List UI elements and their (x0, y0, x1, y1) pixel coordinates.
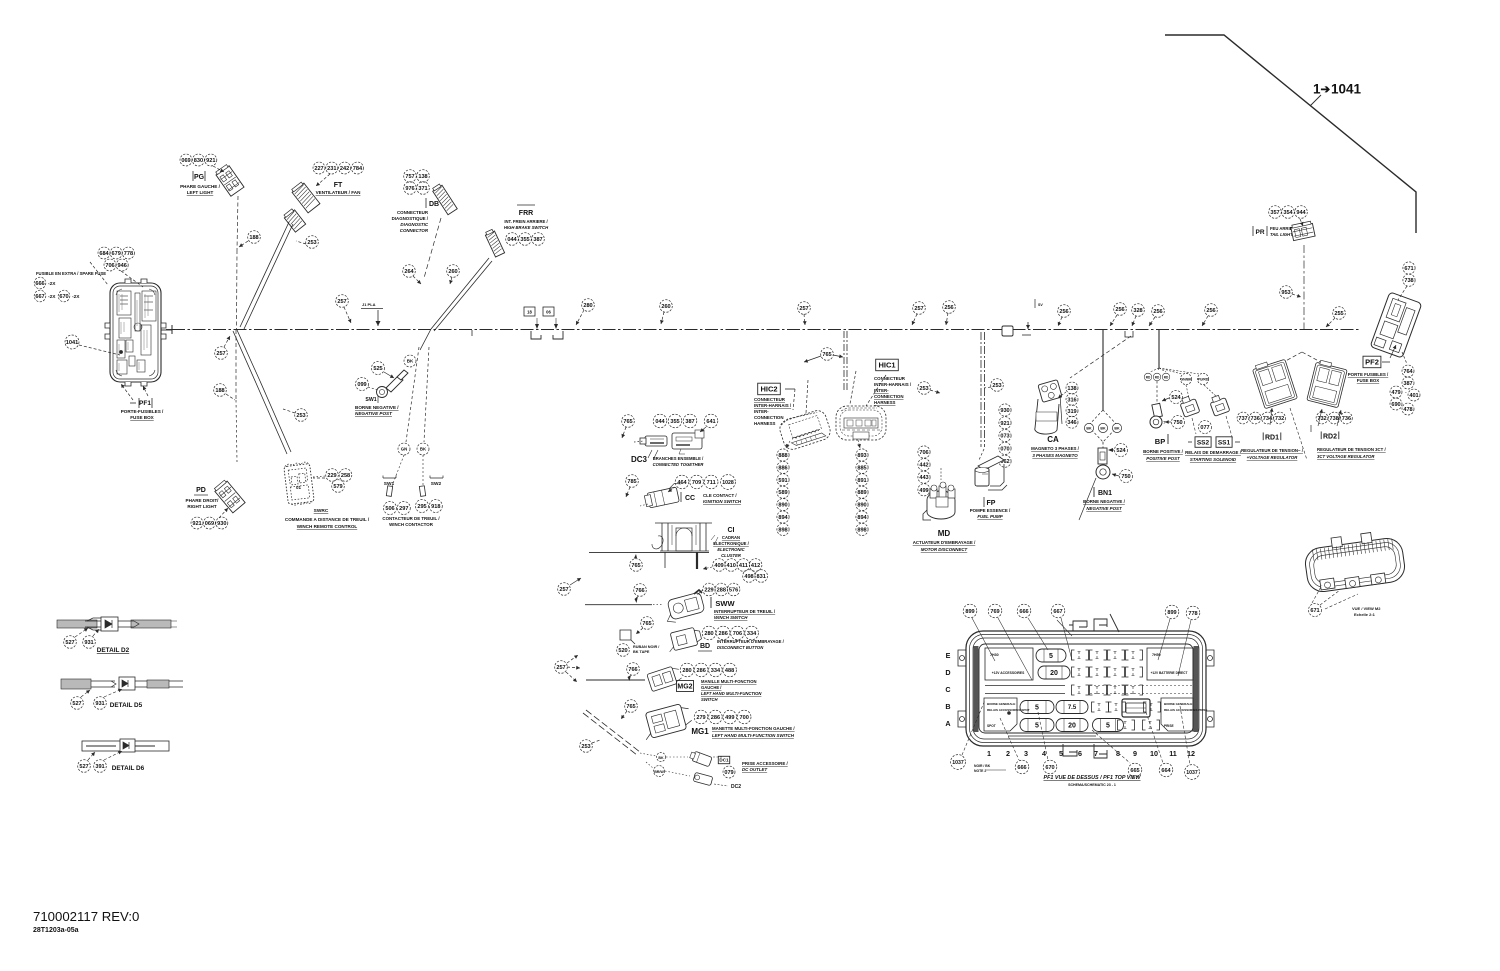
svg-text:765: 765 (631, 563, 640, 569)
svg-text:506: 506 (385, 506, 394, 512)
svg-text:SW2: SW2 (431, 481, 442, 487)
svg-text:3: 3 (1024, 749, 1028, 758)
svg-text:257: 257 (799, 306, 808, 312)
svg-text:SPOT: SPOT (987, 724, 996, 728)
svg-text:2: 2 (1006, 749, 1010, 758)
svg-text:464: 464 (677, 480, 687, 486)
svg-text:442: 442 (919, 463, 928, 469)
svg-text:LEFT HAND MULTI-FUNCTION SWITC: LEFT HAND MULTI-FUNCTION SWITCH (712, 733, 795, 738)
svg-text:750: 750 (1121, 474, 1130, 480)
svg-text:FRR: FRR (519, 210, 533, 217)
svg-text:SCHEMA/SCHEMATIC 23 - 1: SCHEMA/SCHEMATIC 23 - 1 (1068, 783, 1116, 787)
svg-text:18: 18 (527, 310, 532, 315)
svg-text:RD: RD (1155, 375, 1160, 379)
svg-text:499: 499 (725, 715, 734, 721)
svg-text:280: 280 (704, 631, 713, 637)
svg-text:286: 286 (711, 715, 720, 721)
svg-text:253: 253 (919, 386, 928, 392)
svg-text:RD2: RD2 (1323, 434, 1337, 441)
svg-text:01: 01 (296, 485, 302, 490)
svg-text:319: 319 (1067, 409, 1076, 415)
svg-text:073: 073 (1000, 434, 1009, 440)
svg-text:524: 524 (1116, 448, 1126, 454)
svg-text:5: 5 (1106, 723, 1110, 730)
svg-text:256: 256 (944, 305, 953, 311)
svg-text:20: 20 (1050, 670, 1058, 677)
svg-text:706: 706 (105, 263, 114, 269)
svg-text:256: 256 (1206, 308, 1215, 314)
svg-text:412: 412 (751, 563, 760, 569)
svg-text:BK TAPE: BK TAPE (633, 650, 650, 654)
svg-text:710002117 REV:0: 710002117 REV:0 (33, 909, 139, 924)
svg-text:FUSIBLE EN EXTRA / SPARE FUSE: FUSIBLE EN EXTRA / SPARE FUSE (36, 271, 106, 276)
svg-text:286: 286 (697, 668, 706, 674)
svg-text:SWITCH: SWITCH (701, 697, 718, 702)
svg-text:706: 706 (919, 450, 928, 456)
svg-text:NOTE 2: NOTE 2 (974, 769, 986, 773)
svg-text:3CT VOLTAGE REGULATOR: 3CT VOLTAGE REGULATOR (1317, 454, 1375, 459)
svg-text:+VOLTAGE REGULATOR: +VOLTAGE REGULATOR (1247, 455, 1299, 460)
svg-text:5: 5 (1035, 705, 1039, 712)
svg-text:946: 946 (118, 263, 127, 269)
svg-text:MD: MD (938, 529, 951, 538)
svg-text:231: 231 (327, 166, 336, 172)
svg-text:264: 264 (404, 269, 414, 275)
svg-text:766: 766 (635, 588, 644, 594)
svg-text:DISCONNECT BUTTON: DISCONNECT BUTTON (717, 645, 764, 650)
svg-text:RELAIS ACCESSOIRES PRISE: RELAIS ACCESSOIRES PRISE (1164, 708, 1207, 712)
svg-text:443: 443 (919, 475, 928, 481)
svg-text:B: B (945, 702, 950, 711)
svg-text:355: 355 (520, 237, 529, 243)
svg-text:DETAIL D5: DETAIL D5 (110, 702, 143, 709)
svg-text:➔: ➔ (1321, 84, 1331, 96)
svg-text:1028: 1028 (722, 480, 734, 486)
svg-text:BORNE NEGATIVE /: BORNE NEGATIVE / (355, 405, 399, 410)
svg-text:CLUSTER: CLUSTER (721, 553, 741, 558)
svg-text:CONNECTION: CONNECTION (754, 415, 784, 420)
svg-text:410: 410 (727, 563, 736, 569)
svg-text:711: 711 (707, 480, 716, 486)
svg-text:11: 11 (1169, 749, 1177, 758)
svg-text:BK: BK (1086, 427, 1092, 431)
svg-text:COMMANDE A DISTANCE DE TREUIL: COMMANDE A DISTANCE DE TREUIL / (285, 517, 370, 522)
svg-text:SWW: SWW (715, 599, 735, 608)
svg-text:576: 576 (729, 588, 738, 594)
svg-text:899: 899 (1167, 610, 1176, 616)
svg-text:921: 921 (206, 158, 215, 164)
svg-text:391: 391 (95, 764, 104, 770)
svg-text:FP: FP (987, 500, 996, 507)
svg-text:1041: 1041 (66, 340, 78, 346)
svg-text:PORTE FUSIBLES /: PORTE FUSIBLES / (1348, 372, 1389, 377)
svg-text:6: 6 (1078, 749, 1082, 758)
svg-text:784: 784 (353, 166, 363, 172)
svg-text:NEGATIVE POST: NEGATIVE POST (1086, 506, 1122, 511)
svg-text:5: 5 (1035, 723, 1039, 730)
svg-text:PORTE-FUSIBLES /: PORTE-FUSIBLES / (121, 409, 164, 414)
svg-text:280: 280 (583, 303, 592, 309)
svg-text:257: 257 (559, 587, 568, 593)
svg-text:346: 346 (1067, 420, 1076, 426)
svg-text:885: 885 (857, 465, 866, 471)
svg-text:666: 666 (35, 281, 44, 287)
svg-text:CA: CA (1047, 435, 1059, 444)
svg-text:C: C (945, 685, 950, 694)
svg-text:670: 670 (59, 294, 68, 300)
svg-text:SWRC: SWRC (314, 508, 329, 514)
svg-text:253: 253 (581, 744, 590, 750)
svg-text:DB: DB (429, 201, 439, 208)
svg-text:PR: PR (1255, 229, 1264, 236)
svg-text:BK: BK (420, 447, 427, 452)
svg-text:295: 295 (417, 504, 426, 510)
svg-text:898: 898 (857, 527, 866, 533)
svg-text:667: 667 (1053, 609, 1062, 615)
svg-text:BORNE NEGATIVE /: BORNE NEGATIVE / (1083, 499, 1125, 504)
svg-text:1037: 1037 (952, 760, 964, 766)
svg-text:229: 229 (327, 473, 336, 479)
svg-text:188: 188 (249, 235, 258, 241)
svg-text:CONNECTEUR: CONNECTEUR (754, 397, 786, 402)
svg-text:IGNITION SWITCH: IGNITION SWITCH (703, 499, 742, 504)
svg-text:-2X: -2X (48, 294, 56, 300)
svg-text:INTER-HARNAIS /: INTER-HARNAIS / (754, 403, 792, 408)
svg-text:HARNESS: HARNESS (754, 421, 776, 426)
svg-text:MANILLE MULTI-FONCTION: MANILLE MULTI-FONCTION (701, 679, 757, 684)
svg-text:CI: CI (728, 527, 735, 534)
svg-text:297: 297 (399, 506, 408, 512)
svg-text:765: 765 (822, 352, 831, 358)
svg-text:BK: BK (407, 359, 414, 364)
svg-text:20: 20 (1068, 723, 1076, 730)
svg-text:DC1: DC1 (719, 758, 729, 763)
svg-text:257: 257 (914, 306, 923, 312)
svg-text:FUSE BOX: FUSE BOX (130, 415, 154, 420)
svg-text:POMPE ESSENCE /: POMPE ESSENCE / (970, 508, 1011, 513)
svg-text:886: 886 (778, 465, 787, 471)
svg-text:387: 387 (1403, 381, 1412, 387)
svg-text:HIGH BRAKE SWITCH: HIGH BRAKE SWITCH (504, 225, 549, 230)
svg-text:253: 253 (296, 413, 305, 419)
svg-text:VENTILATEUR / FAN: VENTILATEUR / FAN (316, 190, 362, 195)
svg-text:CADRAN: CADRAN (722, 535, 740, 540)
svg-text:WINCH SWITCH: WINCH SWITCH (714, 615, 748, 620)
svg-text:684: 684 (99, 251, 109, 257)
svg-text:257: 257 (556, 665, 565, 671)
svg-text:527: 527 (72, 701, 81, 707)
svg-text:BR/W: BR/W (654, 770, 664, 774)
svg-text:409: 409 (714, 563, 723, 569)
svg-text:06: 06 (546, 310, 551, 315)
svg-text:MG2: MG2 (677, 684, 692, 691)
svg-text:690: 690 (1391, 402, 1400, 408)
svg-text:785: 785 (627, 479, 636, 485)
svg-text:589: 589 (778, 490, 787, 496)
svg-text:288: 288 (717, 588, 726, 594)
svg-text:CONNECTEUR: CONNECTEUR (397, 210, 429, 215)
svg-text:253: 253 (307, 240, 316, 246)
svg-text:498: 498 (744, 574, 753, 580)
svg-text:LEFT LIGHT: LEFT LIGHT (187, 190, 214, 195)
svg-text:488: 488 (725, 668, 734, 674)
svg-text:766: 766 (628, 667, 637, 673)
svg-text:255: 255 (1334, 311, 1343, 317)
svg-text:DETAIL D2: DETAIL D2 (97, 647, 130, 654)
svg-text:069: 069 (181, 158, 190, 164)
svg-text:890: 890 (778, 503, 787, 509)
svg-text:918: 918 (431, 504, 440, 510)
svg-text:CONNECTEUR: CONNECTEUR (874, 376, 906, 381)
svg-text:CONNECTED TOGETHER: CONNECTED TOGETHER (653, 462, 704, 467)
svg-text:MAGNETO 3 PHASES /: MAGNETO 3 PHASES / (1031, 446, 1080, 451)
svg-text:1: 1 (987, 749, 991, 758)
svg-text:256: 256 (1115, 307, 1124, 313)
svg-text:PRISE ACCESSOIRE /: PRISE ACCESSOIRE / (742, 761, 788, 766)
svg-text:DIAGNOSTIQUE /: DIAGNOSTIQUE / (392, 216, 429, 221)
svg-text:328: 328 (1133, 308, 1142, 314)
svg-text:Echelle 2:1: Echelle 2:1 (1354, 612, 1376, 617)
svg-text:12: 12 (1187, 749, 1195, 758)
svg-text:354: 354 (1283, 210, 1293, 216)
svg-text:257: 257 (337, 299, 346, 305)
svg-text:BK: BK (1114, 427, 1120, 431)
svg-text:WINCH REMOTE CONTROL: WINCH REMOTE CONTROL (297, 524, 358, 529)
svg-text:RUBAN NOIR /: RUBAN NOIR / (633, 645, 660, 649)
svg-text:666: 666 (1017, 765, 1026, 771)
svg-text:PG: PG (194, 174, 205, 181)
svg-text:9: 9 (1133, 749, 1137, 758)
svg-text:REGULATEUR DE TENSION 3CT /: REGULATEUR DE TENSION 3CT / (1317, 447, 1386, 452)
svg-text:28T1203a-05a: 28T1203a-05a (33, 927, 79, 934)
svg-text:670: 670 (1045, 765, 1054, 771)
svg-text:PF1: PF1 (139, 400, 151, 407)
svg-text:E: E (946, 651, 951, 660)
svg-text:BK: BK (658, 756, 664, 760)
svg-text:BORNE GENERALE: BORNE GENERALE (1164, 702, 1192, 706)
svg-text:ELECTRONIC: ELECTRONIC (717, 547, 745, 552)
svg-text:921: 921 (1000, 421, 1009, 427)
svg-text:BK: BK (1100, 427, 1106, 431)
svg-text:778: 778 (1188, 611, 1197, 617)
svg-text:899: 899 (965, 609, 974, 615)
svg-text:PD: PD (196, 487, 206, 494)
svg-text:044: 044 (507, 237, 517, 243)
svg-text:WINCH CONTACTOR: WINCH CONTACTOR (389, 522, 434, 527)
svg-text:931: 931 (95, 701, 104, 707)
svg-text:931: 931 (84, 640, 93, 646)
svg-text:NOIR / BK: NOIR / BK (974, 764, 991, 768)
svg-text:890: 890 (857, 503, 866, 509)
svg-text:BN1: BN1 (1098, 490, 1112, 497)
svg-text:411: 411 (739, 563, 748, 569)
svg-text:260: 260 (661, 304, 670, 310)
svg-text:INTER-: INTER- (754, 409, 769, 414)
svg-text:ELECTRONIQUE /: ELECTRONIQUE / (713, 541, 749, 546)
svg-text:D: D (945, 668, 950, 677)
svg-text:ACTUATEUR D'EMBRAYAGE /: ACTUATEUR D'EMBRAYAGE / (913, 540, 976, 545)
svg-text:641: 641 (706, 419, 715, 425)
svg-text:RELAIS DE DEMARRAGE /: RELAIS DE DEMARRAGE / (1185, 450, 1242, 455)
svg-text:188: 188 (215, 388, 224, 394)
svg-text:894: 894 (857, 515, 867, 521)
svg-text:J1 PLA: J1 PLA (362, 302, 376, 307)
svg-text:709: 709 (692, 480, 701, 486)
svg-text:891: 891 (857, 478, 866, 484)
svg-text:706: 706 (733, 631, 742, 637)
svg-text:738: 738 (1330, 416, 1339, 422)
svg-text:334: 334 (711, 668, 721, 674)
svg-text:520: 520 (618, 648, 627, 654)
svg-text:524: 524 (1171, 395, 1181, 401)
svg-text:TAIL LIGHT: TAIL LIGHT (1270, 232, 1293, 237)
svg-text:253: 253 (992, 383, 1001, 389)
svg-text:LEFT HAND MULTI-FUNCTION: LEFT HAND MULTI-FUNCTION (701, 691, 762, 696)
svg-text:387: 387 (685, 419, 694, 425)
svg-text:HIC2: HIC2 (760, 385, 777, 394)
svg-text:1041: 1041 (1331, 82, 1362, 97)
svg-text:HIC1: HIC1 (878, 361, 895, 370)
svg-text:NEGATIVE POST: NEGATIVE POST (355, 411, 393, 416)
svg-text:732: 732 (1317, 416, 1326, 422)
svg-text:+12V BATTERIE DIRECT: +12V BATTERIE DIRECT (1151, 671, 1188, 675)
svg-text:736: 736 (1251, 416, 1260, 422)
svg-text:MG1: MG1 (691, 727, 709, 736)
svg-text:757: 757 (405, 174, 414, 180)
svg-text:738: 738 (1404, 278, 1413, 284)
svg-text:765: 765 (642, 621, 651, 627)
svg-text:671: 671 (1310, 608, 1319, 614)
svg-text:671: 671 (1404, 266, 1413, 272)
svg-text:387: 387 (533, 237, 542, 243)
svg-text:525: 525 (373, 366, 382, 372)
svg-text:079: 079 (724, 770, 733, 776)
svg-text:334: 334 (747, 631, 757, 637)
svg-text:765: 765 (626, 704, 635, 710)
svg-text:478: 478 (1403, 407, 1412, 413)
svg-text:BORNE POSITIVE /: BORNE POSITIVE / (1143, 449, 1184, 454)
svg-text:889: 889 (857, 490, 866, 496)
svg-text:316: 316 (1067, 397, 1076, 403)
svg-text:PRISE: PRISE (1164, 724, 1174, 728)
svg-text:732: 732 (1275, 416, 1284, 422)
svg-text:357: 357 (1270, 210, 1279, 216)
svg-text:930: 930 (217, 521, 226, 527)
svg-text:INTER-: INTER- (874, 388, 889, 393)
svg-text:GN: GN (401, 447, 407, 452)
svg-text:736: 736 (1342, 416, 1351, 422)
svg-text:138: 138 (1067, 386, 1076, 392)
svg-text:258: 258 (341, 473, 350, 479)
svg-text:7.5: 7.5 (1068, 705, 1077, 711)
svg-text:734: 734 (1263, 416, 1273, 422)
svg-text:769: 769 (990, 609, 999, 615)
svg-text:BORNE GENERALE: BORNE GENERALE (987, 702, 1015, 706)
svg-text:750: 750 (1173, 420, 1182, 426)
svg-text:242: 242 (340, 166, 349, 172)
svg-text:BD: BD (700, 643, 710, 650)
svg-text:953: 953 (1281, 290, 1290, 296)
svg-text:898: 898 (778, 527, 787, 533)
svg-text:257: 257 (216, 351, 225, 357)
svg-text:944: 944 (1296, 210, 1306, 216)
svg-text:371: 371 (418, 186, 427, 192)
svg-text:POSITIVE POST: POSITIVE POST (1146, 456, 1180, 461)
svg-text:RD: RD (1146, 375, 1151, 379)
svg-text:MANETTE MULTI-FONCTION GAUCHE: MANETTE MULTI-FONCTION GAUCHE / (712, 726, 795, 731)
svg-text:DIAGNOSTIC: DIAGNOSTIC (400, 222, 428, 227)
svg-text:CC: CC (685, 495, 695, 502)
svg-text:PU/RD: PU/RD (1198, 378, 1209, 382)
svg-text:STARTING SOLENOID: STARTING SOLENOID (1190, 457, 1237, 462)
svg-text:PF2: PF2 (1365, 358, 1379, 367)
svg-text:-2X: -2X (72, 294, 80, 300)
svg-text:7: 7 (1094, 749, 1098, 758)
svg-text:401: 401 (1409, 393, 1418, 399)
svg-text:PHARE DROIT/: PHARE DROIT/ (186, 498, 220, 503)
svg-text:527: 527 (65, 640, 74, 646)
svg-text:579: 579 (333, 484, 342, 490)
svg-text:280: 280 (682, 668, 691, 674)
svg-text:893: 893 (857, 453, 866, 459)
svg-text:FT: FT (334, 182, 343, 189)
svg-text:DETAIL D6: DETAIL D6 (112, 765, 145, 772)
svg-text:INTERRUPTEUR DE TREUIL /: INTERRUPTEUR DE TREUIL / (714, 609, 776, 614)
svg-text:256: 256 (1153, 309, 1162, 315)
svg-text:831: 831 (757, 574, 766, 580)
svg-text:227: 227 (314, 166, 323, 172)
svg-text:279: 279 (696, 715, 705, 721)
svg-text:INT. FREIN ARRIERE /: INT. FREIN ARRIERE / (504, 219, 548, 224)
svg-text:CLE CONTACT /: CLE CONTACT / (703, 493, 737, 498)
svg-text:355: 355 (670, 419, 679, 425)
svg-text:666: 666 (1019, 609, 1028, 615)
svg-text:077: 077 (1200, 425, 1209, 431)
svg-text:REGULATEUR DE TENSION~ /: REGULATEUR DE TENSION~ / (1241, 448, 1304, 453)
svg-text:778: 778 (124, 251, 133, 257)
svg-text:DC3: DC3 (631, 455, 648, 464)
svg-text:700: 700 (740, 715, 749, 721)
svg-text:664: 664 (1161, 768, 1171, 774)
svg-text:527: 527 (79, 764, 88, 770)
svg-text:BRANCHES ENSEMBLE /: BRANCHES ENSEMBLE / (653, 456, 704, 461)
svg-text:764: 764 (1403, 369, 1413, 375)
svg-text:976: 976 (405, 186, 414, 192)
svg-text:930: 930 (1000, 408, 1009, 414)
svg-text:PHARE GAUCHE /: PHARE GAUCHE / (180, 184, 221, 189)
svg-text:FUSE BOX: FUSE BOX (1357, 378, 1380, 383)
svg-text:765: 765 (623, 419, 632, 425)
svg-text:INTERRUPTEUR D'EMBRAYAGE /: INTERRUPTEUR D'EMBRAYAGE / (717, 639, 785, 644)
svg-text:RD1: RD1 (1265, 435, 1279, 442)
svg-text:DC OUTLET: DC OUTLET (742, 767, 767, 772)
svg-text:260: 260 (448, 269, 457, 275)
svg-text:591: 591 (778, 478, 787, 484)
svg-text:5: 5 (1049, 653, 1053, 660)
svg-text:099: 099 (357, 382, 366, 388)
svg-text:SS1: SS1 (1218, 439, 1231, 446)
svg-text:GN/BK: GN/BK (1181, 378, 1192, 382)
svg-text:256: 256 (1059, 309, 1068, 315)
svg-text:679: 679 (112, 251, 121, 257)
svg-text:070: 070 (1000, 446, 1009, 452)
svg-text:MOTOR DISCONNECT: MOTOR DISCONNECT (921, 547, 968, 552)
svg-text:286: 286 (719, 631, 728, 637)
svg-text:069: 069 (205, 521, 214, 527)
svg-text:CONNECTOR: CONNECTOR (400, 228, 429, 233)
svg-text:PF1 VUE DE DESSUS / PF1 TOP VI: PF1 VUE DE DESSUS / PF1 TOP VIEW (1043, 775, 1141, 781)
svg-text:229: 229 (704, 588, 713, 594)
